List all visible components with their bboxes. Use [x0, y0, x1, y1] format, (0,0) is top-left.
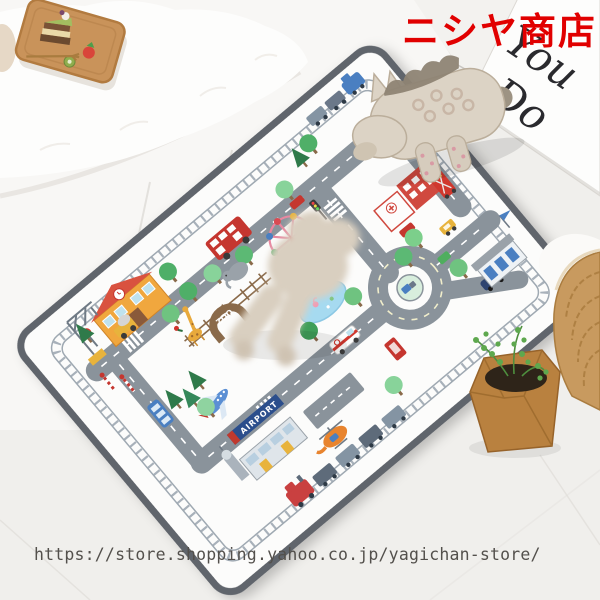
product-photo: You Do [0, 0, 600, 600]
scene: You Do [0, 0, 600, 600]
shop-name-overlay: ニシヤ商店 [402, 10, 597, 53]
store-url-overlay: https://store.shopping.yahoo.co.jp/yagic… [34, 545, 541, 564]
